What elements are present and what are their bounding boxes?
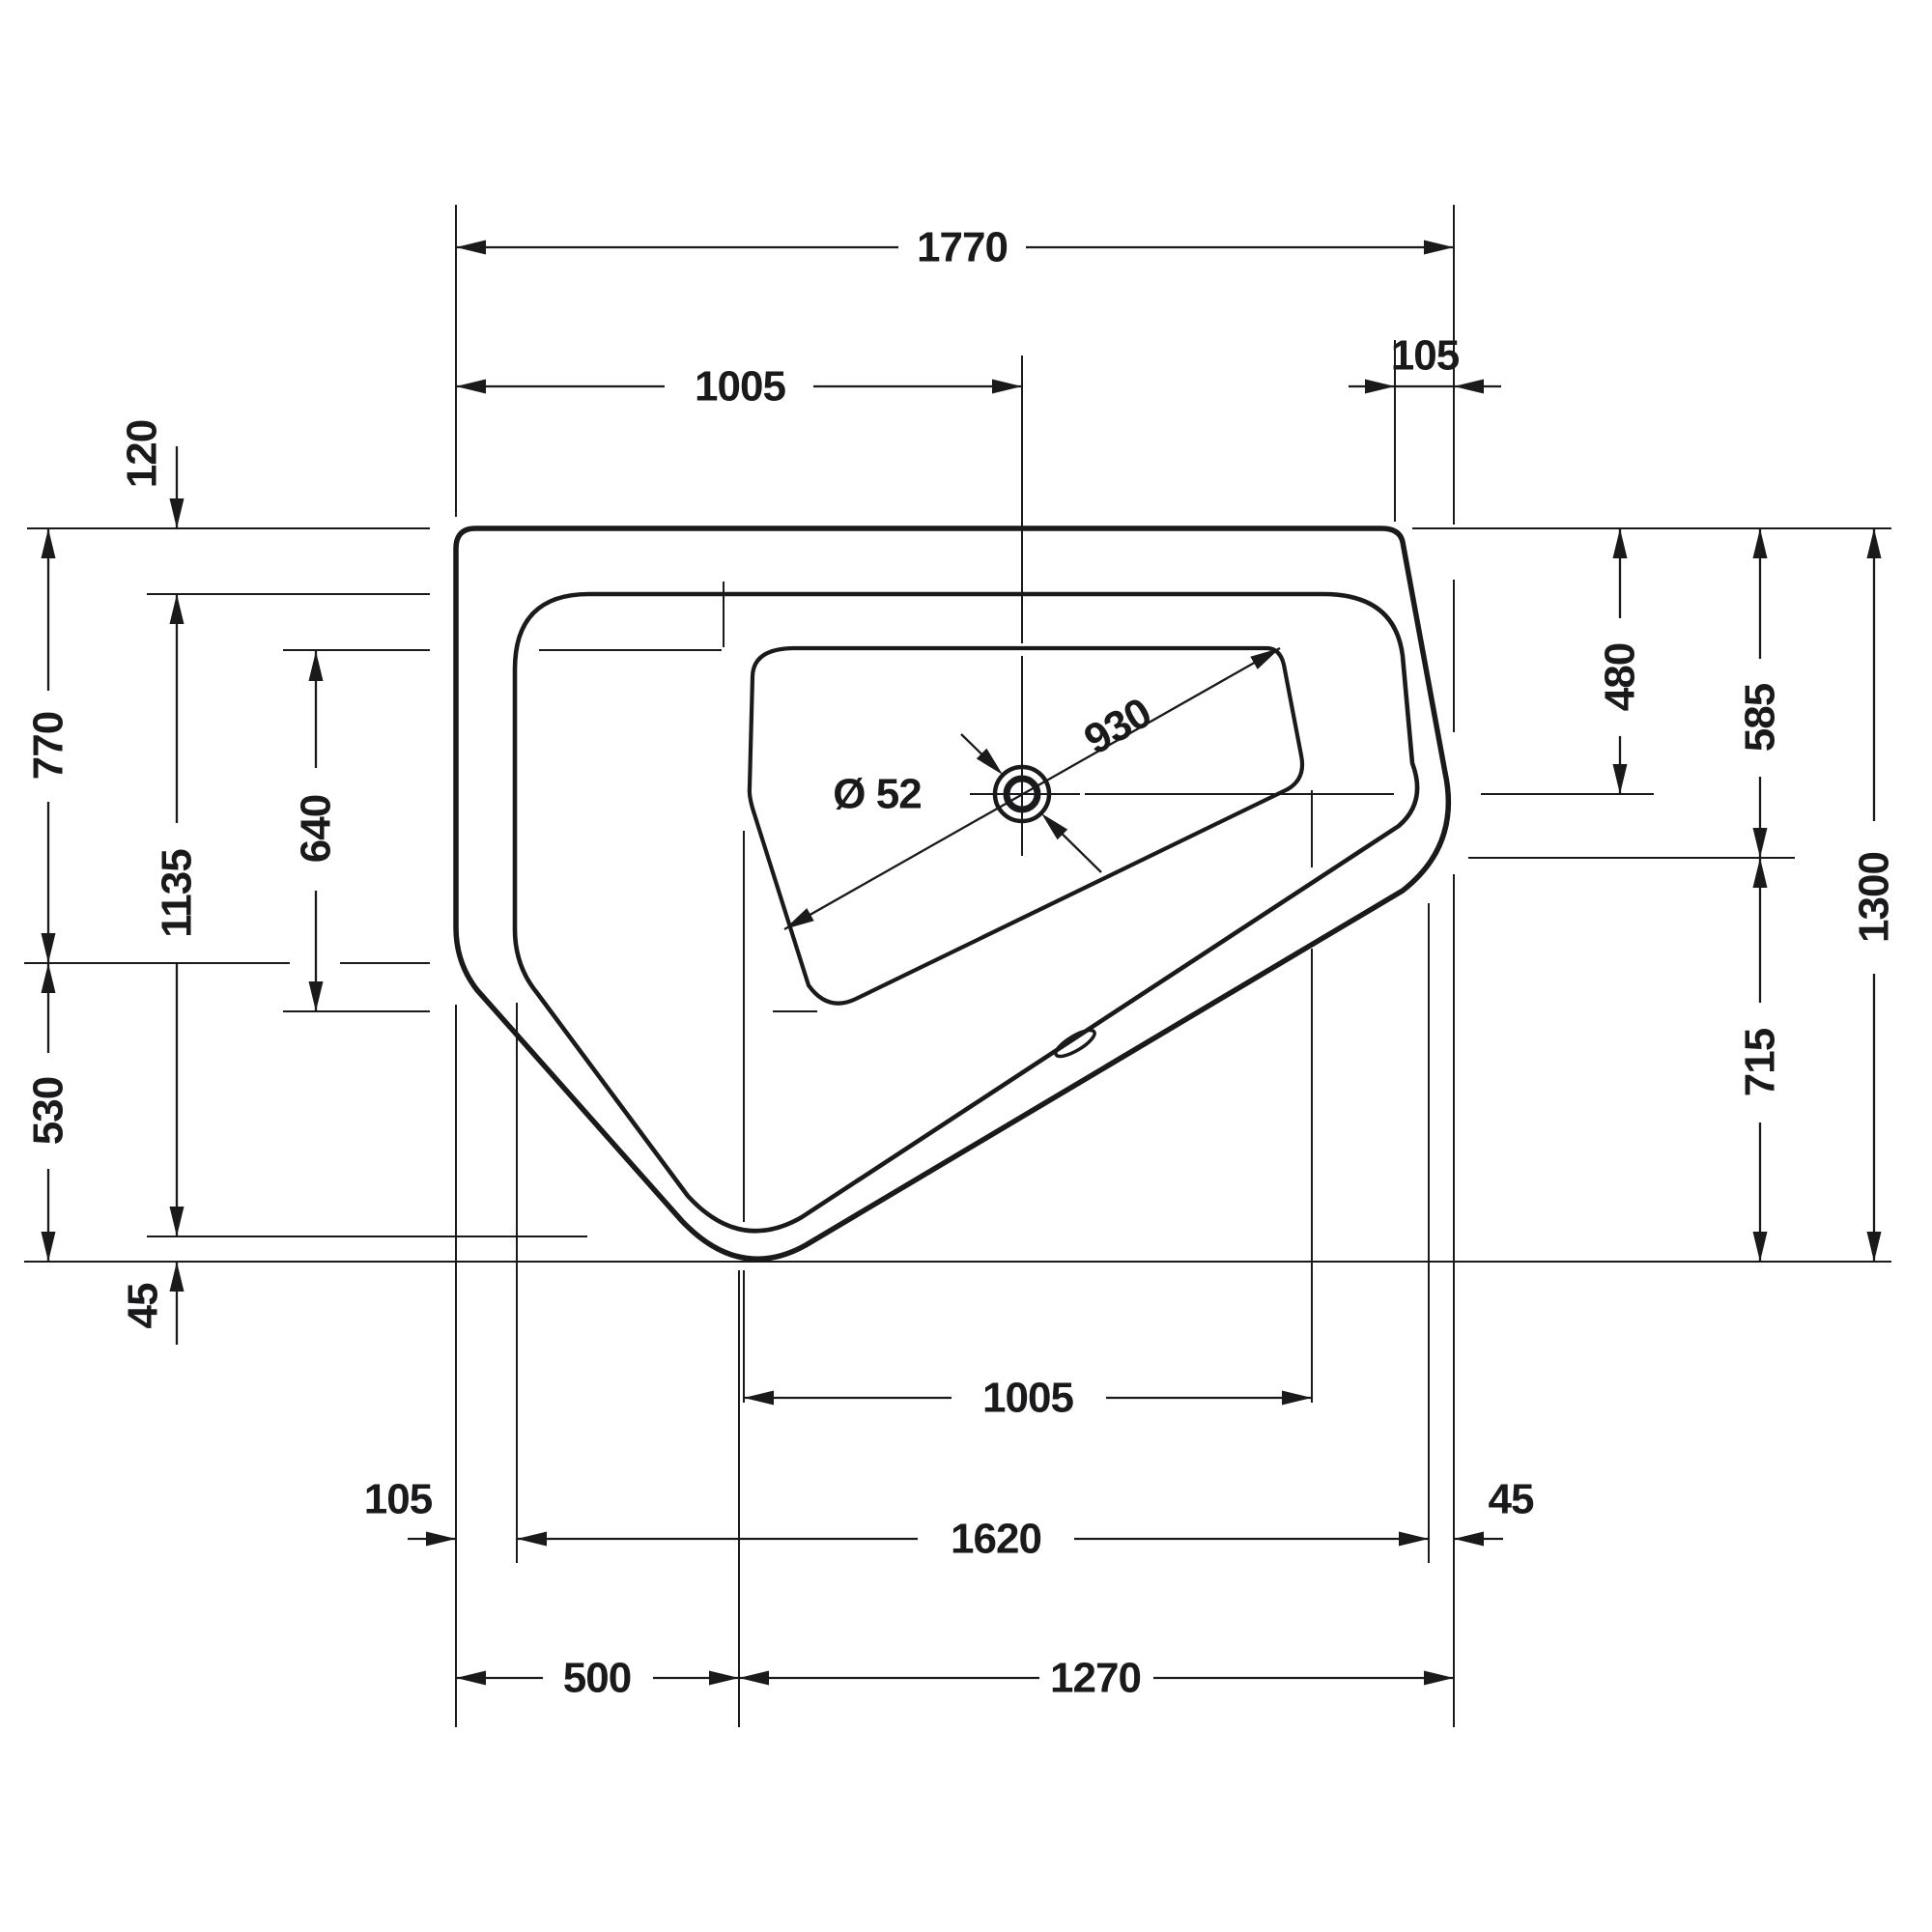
overflow-slot — [1052, 1026, 1097, 1062]
dim-label-bottom-span: 1620 — [951, 1516, 1041, 1563]
dim-label-rim-left-height: 1135 — [154, 849, 201, 938]
arrowhead — [42, 963, 56, 993]
arrowhead — [42, 933, 56, 963]
dim-label-bottom-vertex-offset: 500 — [563, 1655, 631, 1702]
dim-label-left-to-side-bend: 770 — [25, 712, 72, 780]
tub-rim-outline — [515, 594, 1417, 1231]
arrowhead — [1753, 828, 1768, 858]
arrowhead — [42, 528, 56, 558]
arrowhead — [1867, 528, 1882, 558]
arrowhead — [992, 380, 1022, 394]
arrowhead — [170, 1262, 185, 1292]
arrowhead — [744, 1391, 774, 1406]
arrowhead — [1753, 858, 1768, 888]
dim-label-bottom-right-gap: 45 — [1489, 1476, 1534, 1523]
dim-label-left-bend-to-bottom: 530 — [25, 1077, 72, 1145]
dim-label-drain-diameter: Ø 52 — [833, 771, 921, 818]
basin-outline — [750, 648, 1302, 1004]
arrowhead — [456, 241, 486, 255]
arrowhead — [1454, 380, 1484, 394]
bathtub-technical-drawing: 1770 1005 105 120 770 1135 640 530 45 Ø … — [0, 0, 1932, 1932]
arrowhead — [309, 981, 324, 1011]
arrowhead — [1424, 241, 1454, 255]
arrowhead — [1613, 528, 1628, 558]
dim-label-corner-to-bottom: 715 — [1737, 1028, 1784, 1096]
arrowhead — [170, 498, 185, 528]
arrowhead — [1613, 764, 1628, 794]
arrowhead — [170, 594, 185, 624]
arrowhead — [709, 1671, 739, 1686]
dim-label-basin-left-height: 640 — [293, 795, 340, 863]
drain — [961, 734, 1101, 872]
arrowhead — [1282, 1391, 1312, 1406]
arrowhead — [517, 1532, 547, 1547]
dim-label-right-to-corner: 585 — [1737, 683, 1784, 752]
dim-label-rim-top-inset: 120 — [119, 420, 166, 488]
dim-label-top-right-corner-offset: 105 — [1391, 332, 1460, 380]
dimension-labels: 1770 1005 105 120 770 1135 640 530 45 Ø … — [25, 224, 1898, 1702]
dim-label-basin-bottom-width: 1005 — [982, 1375, 1073, 1422]
dim-label-rim-bottom-gap: 45 — [120, 1283, 167, 1328]
arrowhead — [1399, 1532, 1429, 1547]
arrowhead — [1424, 1671, 1454, 1686]
arrowhead — [456, 1671, 486, 1686]
drawing-page: 1770 1005 105 120 770 1135 640 530 45 Ø … — [0, 0, 1932, 1932]
dim-label-top-overall: 1770 — [917, 224, 1008, 271]
dim-label-top-drain-offset: 1005 — [695, 363, 785, 411]
arrowhead — [1454, 1532, 1484, 1547]
tub-outlines — [456, 528, 1448, 1259]
dim-label-overall-depth: 1300 — [1851, 852, 1898, 943]
dimension-lines — [42, 241, 1882, 1686]
arrowhead — [456, 380, 486, 394]
arrowhead — [170, 1207, 185, 1236]
dim-label-bottom-vertex-to-right: 1270 — [1050, 1655, 1141, 1702]
arrowhead — [739, 1671, 769, 1686]
dim-label-rim-right-inset-height: 480 — [1597, 643, 1644, 711]
arrowhead — [42, 1232, 56, 1262]
extension-lines — [24, 205, 1891, 1727]
arrowhead — [1753, 1232, 1768, 1262]
arrowhead — [309, 651, 324, 681]
arrowhead — [1867, 1232, 1882, 1262]
arrowhead — [1753, 528, 1768, 558]
arrowhead — [1365, 380, 1395, 394]
arrowhead — [426, 1532, 456, 1547]
tub-outer-outline — [456, 528, 1448, 1259]
dim-label-basin-diagonal: 930 — [1076, 689, 1158, 764]
dim-label-bottom-left-offset: 105 — [364, 1476, 433, 1523]
